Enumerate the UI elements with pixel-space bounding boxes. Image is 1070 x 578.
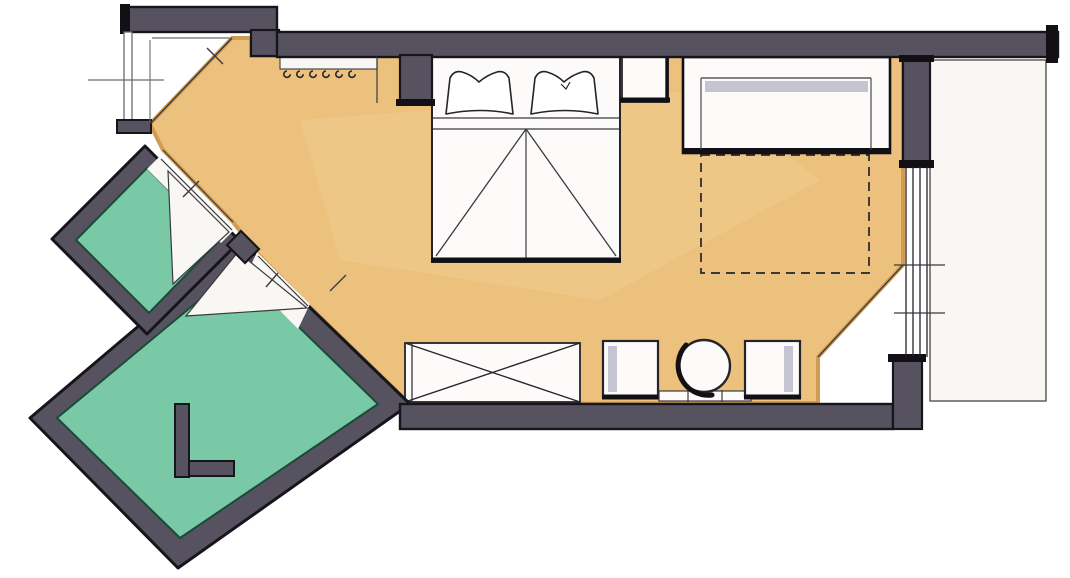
armchair-right: [744, 341, 801, 397]
window-pillar-upper: [903, 57, 930, 167]
armchair-left-cushion-shade: [608, 346, 617, 392]
wardrobe-closet: [405, 343, 580, 402]
wall-top-main: [277, 32, 1058, 57]
entry-side-wall-thin: [124, 32, 132, 124]
armchair-right-cushion-shade: [784, 346, 793, 392]
wall-bottom: [400, 404, 893, 429]
nightstand: [620, 57, 670, 102]
sofa-backrest-shade: [705, 81, 868, 92]
wall-step-pillar: [251, 30, 279, 56]
window-pillar-upper-cap1: [899, 55, 934, 62]
balcony: [930, 60, 1046, 401]
armchair-left: [602, 341, 659, 397]
wall-cap-top-left: [120, 4, 130, 34]
window-pillar-upper-cap2: [899, 160, 934, 168]
wall-top-left: [123, 7, 277, 32]
entry-corner-block: [117, 120, 151, 133]
wall-cap-top-right: [1046, 25, 1058, 63]
window-pillar-lower: [893, 357, 922, 429]
floor-plan-drawing: [0, 0, 1070, 578]
floor-plan-canvas: [0, 0, 1070, 578]
sofa: [683, 57, 890, 153]
bed-niche-pillar: [400, 55, 432, 103]
double-bed: [431, 57, 621, 262]
bed-niche-pillar-cap: [396, 99, 435, 106]
